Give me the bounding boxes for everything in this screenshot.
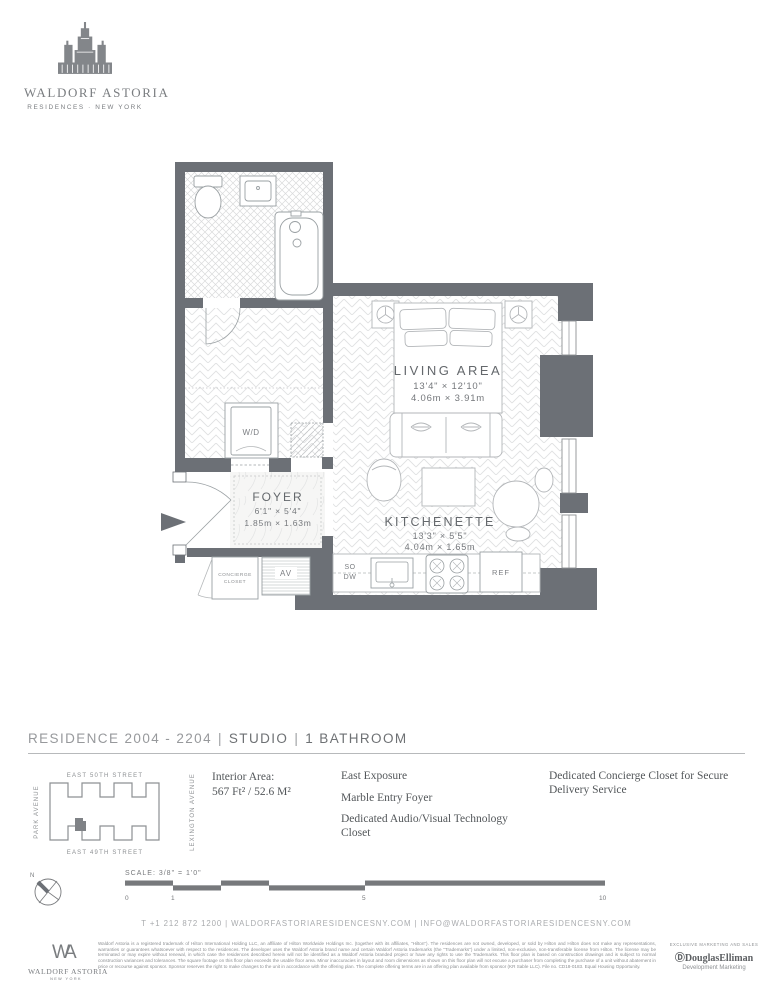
av-label: AV — [280, 569, 292, 578]
scale-ticks: 0 1 5 10 — [125, 895, 607, 902]
concierge-closet: CONCIERGE CLOSET — [198, 557, 258, 599]
kitchenette-counter: SO DW REF — [333, 552, 540, 593]
features-column-2: Dedicated Concierge Closet for Secure De… — [549, 770, 755, 797]
marketing-agency-block: EXCLUSIVE MARKETING AND SALES ⒹDouglasEl… — [666, 942, 762, 971]
interior-area: Interior Area: 567 Ft² / 52.6 M² — [212, 770, 332, 800]
foyer-label: FOYER — [252, 490, 303, 504]
footer-brand-name: WALDORF ASTORIA — [28, 967, 104, 976]
interior-area-value: 567 Ft² / 52.6 M² — [212, 785, 332, 800]
foyer-dim-ft: 6'1" × 5'4" — [255, 506, 302, 516]
stove-icon — [426, 555, 468, 593]
avenue-left-label: PARK AVENUE — [34, 785, 40, 839]
waldorf-building-icon — [53, 22, 117, 76]
legal-disclaimer: Waldorf Astoria is a registered trademar… — [98, 941, 656, 970]
footer-brand: W A WALDORF ASTORIA NEW YORK — [28, 940, 104, 981]
avenue-right-label: LEXINGTON AVENUE — [190, 773, 196, 851]
so-label: SO — [344, 564, 355, 571]
agency-name: DouglasElliman — [685, 953, 753, 964]
dw-label: DW — [344, 574, 357, 581]
key-plan: EAST 50TH STREET EAST 49TH STREET PARK A… — [28, 766, 203, 861]
residence-type: STUDIO — [229, 731, 288, 746]
wd-closet: W/D — [225, 403, 278, 458]
scale-tick: 0 — [125, 895, 129, 902]
agency-d-icon: Ⓓ — [675, 953, 685, 964]
wa-monogram-icon: W A — [49, 940, 83, 962]
feature-item: Dedicated Audio/Visual Technology Closet — [341, 813, 537, 840]
agency-logo: ⒹDouglasElliman — [666, 949, 762, 964]
refrigerator-icon: REF — [480, 552, 522, 592]
interior-area-label: Interior Area: — [212, 770, 332, 785]
entry-arrow-icon — [161, 513, 186, 531]
agency-tagline: EXCLUSIVE MARKETING AND SALES — [666, 942, 762, 947]
armchair-icon — [367, 459, 401, 501]
compass: N — [26, 868, 72, 912]
street-top-label: EAST 50TH STREET — [67, 773, 143, 779]
ref-label: REF — [492, 568, 510, 577]
toilet-tank — [194, 176, 222, 187]
living-area-dim-m: 4.06m × 3.91m — [411, 393, 485, 404]
toilet-icon — [195, 186, 221, 218]
kitchenette-dim-ft: 13'3" × 5'5" — [413, 531, 468, 541]
feature-item: Marble Entry Foyer — [341, 792, 537, 806]
ceiling-speaker-right — [505, 301, 532, 328]
features-column-1: East Exposure Marble Entry Foyer Dedicat… — [341, 770, 537, 848]
living-area-dim-ft: 13'4" × 12'10" — [413, 381, 482, 392]
entry-door — [186, 500, 231, 545]
scale-bar: SCALE: 3/8" = 1'0" 0 1 5 10 — [118, 866, 618, 908]
brand-block: WALDORF ASTORIA RESIDENCES · NEW YORK — [24, 22, 146, 111]
floor-plan: W/D CONCIERGE CLOSET AV SO DW — [128, 155, 628, 617]
feature-item: Dedicated Concierge Closet for Secure De… — [549, 770, 755, 797]
kitchenette-dim-m: 4.04m × 1.65m — [405, 542, 476, 552]
brand-subtitle: RESIDENCES · NEW YORK — [24, 104, 146, 111]
brand-name: WALDORF ASTORIA — [24, 85, 146, 101]
scale-tick: 10 — [599, 895, 607, 902]
concierge-door — [198, 559, 212, 595]
residence-number: RESIDENCE 2004 - 2204 — [28, 731, 212, 746]
residence-bathrooms: 1 BATHROOM — [305, 731, 407, 746]
living-area-label: LIVING AREA — [394, 363, 502, 378]
sofa-icon — [390, 413, 502, 457]
concierge-label-2: CLOSET — [224, 579, 246, 585]
foyer-dim-m: 1.85m × 1.63m — [244, 518, 311, 528]
kitchenette-label: KITCHENETTE — [384, 515, 495, 529]
scale-bar-segments — [125, 881, 605, 891]
feature-item: East Exposure — [341, 770, 537, 784]
coffee-table-icon — [422, 468, 475, 506]
divider-rule — [28, 753, 745, 754]
technology-closet — [291, 423, 323, 457]
concierge-label-1: CONCIERGE — [218, 572, 252, 578]
footer-brand-sub: NEW YORK — [28, 977, 104, 981]
separator: | — [218, 731, 223, 746]
scale-label: SCALE: 3/8" = 1'0" — [125, 870, 202, 877]
street-bottom-label: EAST 49TH STREET — [67, 850, 143, 856]
north-label: N — [30, 873, 34, 879]
contact-line: T +1 212 872 1200 | WALDORFASTORIARESIDE… — [0, 919, 773, 928]
agency-division: Development Marketing — [666, 965, 762, 971]
residence-title: RESIDENCE 2004 - 2204|STUDIO|1 BATHROOM — [28, 731, 745, 746]
av-closet: AV — [262, 557, 310, 595]
svg-text:A: A — [64, 942, 77, 962]
scale-tick: 1 — [171, 895, 175, 902]
scale-tick: 5 — [362, 895, 366, 902]
separator: | — [294, 731, 299, 746]
wd-label: W/D — [242, 428, 259, 437]
building-footprint — [50, 783, 159, 840]
